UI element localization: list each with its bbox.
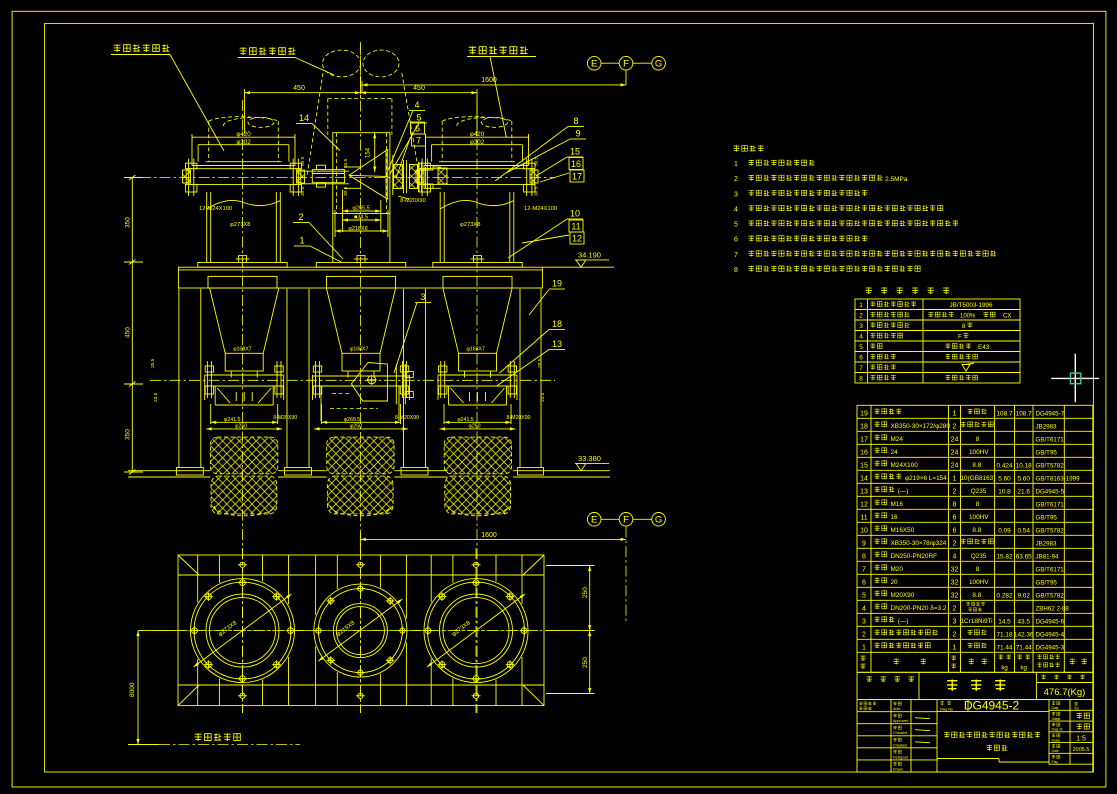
- svg-text:Dwg St: Dwg St: [1052, 728, 1063, 732]
- svg-text:8.8: 8.8: [972, 592, 981, 599]
- svg-text:50.5: 50.5: [300, 156, 306, 166]
- svg-text:8-M20X90: 8-M20X90: [507, 415, 531, 421]
- svg-text:71.18: 71.18: [997, 631, 1013, 638]
- svg-text:GB/T95: GB/T95: [1036, 514, 1058, 521]
- svg-text:6: 6: [953, 527, 957, 534]
- svg-text:108.7: 108.7: [997, 410, 1013, 417]
- svg-text:M16: M16: [890, 501, 903, 508]
- svg-text:Checked: Checked: [893, 743, 907, 747]
- svg-text:DN250-PN20RF: DN250-PN20RF: [890, 553, 937, 560]
- svg-text:3: 3: [953, 618, 957, 625]
- svg-text:Approved: Approved: [893, 719, 908, 723]
- svg-text:GB/T5782: GB/T5782: [1036, 462, 1065, 469]
- svg-text:32: 32: [951, 566, 959, 573]
- svg-text:8-M20X90: 8-M20X90: [400, 198, 425, 204]
- svg-text:G: G: [655, 58, 662, 69]
- svg-text:10.18: 10.18: [1016, 462, 1032, 469]
- svg-text:24: 24: [951, 462, 959, 469]
- svg-text:1: 1: [862, 644, 866, 651]
- svg-text:12: 12: [860, 501, 868, 508]
- svg-text:(—): (—): [898, 618, 909, 625]
- svg-text:8: 8: [962, 323, 966, 330]
- svg-text:φ219×6 L=154: φ219×6 L=154: [905, 475, 947, 482]
- svg-text:DG4945-7: DG4945-7: [1036, 410, 1065, 417]
- svg-text:7: 7: [416, 136, 421, 146]
- svg-text:10: 10: [570, 209, 580, 219]
- svg-text:kg: kg: [1021, 665, 1027, 671]
- svg-text:Auth.: Auth.: [893, 707, 901, 711]
- svg-text:34.190: 34.190: [578, 251, 601, 260]
- svg-text:■34.5: ■34.5: [354, 215, 368, 221]
- svg-text:Dwg: Dwg: [1052, 706, 1059, 710]
- svg-text:16: 16: [860, 449, 868, 456]
- svg-text:JB2983: JB2983: [1036, 423, 1058, 430]
- svg-text:3: 3: [862, 618, 866, 625]
- svg-text:M24: M24: [890, 436, 903, 443]
- svg-text:13: 13: [860, 488, 868, 495]
- svg-text:8.8: 8.8: [972, 527, 981, 534]
- svg-text:5: 5: [859, 344, 863, 351]
- svg-text:φ241.5: φ241.5: [457, 417, 473, 423]
- svg-text:18: 18: [552, 319, 562, 329]
- svg-text:DG4945-3: DG4945-3: [1036, 644, 1065, 651]
- svg-text:63.65: 63.65: [1016, 553, 1032, 560]
- svg-text:8: 8: [953, 501, 957, 508]
- svg-text:30.5: 30.5: [534, 186, 540, 196]
- svg-text:24: 24: [951, 449, 959, 456]
- svg-text:10.8: 10.8: [998, 488, 1011, 495]
- svg-text:32: 32: [951, 579, 959, 586]
- svg-text:21.6: 21.6: [1017, 488, 1030, 495]
- svg-text:φ265.5: φ265.5: [352, 206, 369, 212]
- svg-text:17: 17: [572, 172, 582, 182]
- svg-text:1: 1: [953, 644, 957, 651]
- svg-text:1: 1: [299, 236, 304, 246]
- svg-text:φ250: φ250: [235, 424, 247, 430]
- svg-text:φ218X8: φ218X8: [348, 226, 367, 232]
- svg-text:19: 19: [860, 410, 868, 417]
- svg-text:XB350-30×78/φ324: XB350-30×78/φ324: [890, 540, 946, 547]
- svg-text:8-M20X90: 8-M20X90: [273, 415, 297, 421]
- svg-text:250: 250: [582, 587, 589, 598]
- svg-text:JB81-94: JB81-94: [1036, 553, 1060, 560]
- svg-text:7: 7: [734, 252, 738, 259]
- svg-text:φ168X7: φ168X7: [467, 347, 485, 353]
- svg-text:1:5: 1:5: [1076, 736, 1086, 743]
- svg-text:11: 11: [860, 514, 867, 521]
- svg-text:DN200-PN20 δ=3.2: DN200-PN20 δ=3.2: [890, 605, 946, 612]
- svg-text:Checked: Checked: [893, 731, 907, 735]
- svg-text:DG4945-5: DG4945-5: [1036, 488, 1065, 495]
- svg-text:2005.5: 2005.5: [1073, 747, 1090, 753]
- svg-text:25.5: 25.5: [150, 358, 156, 368]
- svg-text:2: 2: [953, 423, 957, 430]
- svg-text:19: 19: [552, 279, 562, 289]
- svg-text:6: 6: [734, 237, 738, 244]
- svg-text:2: 2: [862, 631, 866, 638]
- svg-text:154: 154: [366, 147, 372, 158]
- svg-text:8: 8: [976, 566, 980, 573]
- svg-text:0.54: 0.54: [1017, 527, 1030, 534]
- svg-text:10: 10: [860, 527, 868, 534]
- svg-text:GB/T95: GB/T95: [1036, 579, 1058, 586]
- svg-text:GB/T5782: GB/T5782: [1036, 592, 1065, 599]
- svg-text:100HV: 100HV: [969, 579, 989, 586]
- svg-text:φ250: φ250: [350, 424, 362, 430]
- svg-text:DG4945-2: DG4945-2: [964, 699, 1020, 713]
- svg-text:GB/T6171: GB/T6171: [1036, 566, 1065, 573]
- svg-text:0.424: 0.424: [997, 462, 1013, 469]
- svg-text:23.5: 23.5: [153, 392, 159, 402]
- svg-text:φ420: φ420: [470, 131, 485, 138]
- svg-text:E43: E43: [978, 344, 990, 351]
- svg-text:8: 8: [862, 553, 866, 560]
- svg-text:M20X90: M20X90: [890, 592, 914, 599]
- svg-text:3: 3: [859, 323, 863, 330]
- svg-text:4: 4: [862, 605, 866, 612]
- svg-text:M20: M20: [890, 566, 903, 573]
- svg-text:GB/T95: GB/T95: [1036, 449, 1058, 456]
- svg-text:8000: 8000: [129, 682, 136, 697]
- svg-text:Q235: Q235: [971, 553, 987, 560]
- svg-text:E: E: [591, 58, 597, 69]
- svg-text:φ302: φ302: [236, 139, 251, 146]
- svg-text:12: 12: [572, 234, 582, 244]
- svg-text:14: 14: [299, 113, 309, 123]
- svg-text:2: 2: [298, 212, 303, 222]
- svg-text:φ273X8: φ273X8: [460, 222, 481, 228]
- svg-text:100HV: 100HV: [969, 514, 989, 521]
- svg-text:JB/T5003-1996: JB/T5003-1996: [949, 302, 993, 309]
- svg-text:450: 450: [125, 327, 132, 338]
- svg-text:0.282: 0.282: [997, 592, 1013, 599]
- svg-text:F: F: [623, 515, 629, 526]
- svg-text:450: 450: [413, 85, 425, 92]
- svg-text:30.5: 30.5: [300, 186, 306, 196]
- svg-text:15: 15: [570, 147, 580, 157]
- svg-text:3: 3: [734, 191, 738, 198]
- svg-text:φ168X7: φ168X7: [350, 347, 368, 353]
- svg-text:CX: CX: [1003, 314, 1011, 320]
- svg-text:100%: 100%: [960, 314, 976, 320]
- svg-text:5.60: 5.60: [1017, 475, 1030, 482]
- svg-text:13: 13: [552, 339, 562, 349]
- svg-text:2.5MPa: 2.5MPa: [885, 176, 908, 183]
- svg-text:(—): (—): [898, 488, 909, 495]
- svg-text:14: 14: [860, 475, 868, 482]
- svg-text:43.5: 43.5: [1017, 618, 1030, 625]
- svg-text:25.5: 25.5: [537, 358, 543, 368]
- svg-text:7: 7: [859, 365, 863, 372]
- svg-text:4: 4: [734, 206, 738, 213]
- svg-text:16: 16: [571, 159, 581, 169]
- svg-text:30.5: 30.5: [343, 186, 349, 196]
- svg-text:1: 1: [859, 302, 863, 309]
- svg-text:5: 5: [734, 222, 738, 229]
- svg-text:M24X100: M24X100: [890, 462, 918, 469]
- svg-text:71.44: 71.44: [997, 644, 1013, 651]
- svg-text:142.36: 142.36: [1014, 631, 1034, 638]
- svg-text:2: 2: [953, 540, 957, 547]
- svg-text:Pag: Pag: [1052, 760, 1058, 764]
- svg-text:XB350-30×172/φ280: XB350-30×172/φ280: [890, 423, 950, 430]
- svg-text:450: 450: [293, 85, 305, 92]
- svg-text:8-M20X90: 8-M20X90: [395, 415, 419, 421]
- svg-text:476.7(Kg): 476.7(Kg): [1044, 687, 1086, 698]
- svg-text:1: 1: [953, 410, 957, 417]
- svg-text:0.09: 0.09: [998, 527, 1011, 534]
- svg-text:2: 2: [859, 313, 863, 320]
- svg-text:1: 1: [953, 475, 957, 482]
- svg-text:Date: Date: [1052, 749, 1059, 753]
- svg-text:φ241.5: φ241.5: [224, 417, 240, 423]
- svg-text:GB/T8163-1999: GB/T8163-1999: [1036, 475, 1081, 482]
- svg-text:12-M24X100: 12-M24X100: [524, 206, 557, 212]
- svg-text:3: 3: [420, 292, 425, 302]
- svg-text:5: 5: [416, 113, 421, 123]
- svg-text:Q235: Q235: [971, 488, 987, 495]
- svg-text:23.5: 23.5: [540, 392, 546, 402]
- svg-text:DG4945-6: DG4945-6: [1036, 618, 1065, 625]
- svg-text:6: 6: [862, 579, 866, 586]
- svg-text:108.7: 108.7: [1016, 410, 1032, 417]
- svg-text:20: 20: [890, 579, 898, 586]
- svg-text:100HV: 100HV: [969, 449, 989, 456]
- svg-text:1Cr18Ni9Ti: 1Cr18Ni9Ti: [961, 618, 993, 625]
- svg-text:φ273X8: φ273X8: [230, 222, 251, 228]
- svg-text:6: 6: [859, 355, 863, 362]
- svg-text:4: 4: [414, 100, 419, 110]
- svg-text:Designed: Designed: [893, 755, 908, 759]
- svg-text:8: 8: [734, 267, 738, 274]
- svg-text:11: 11: [571, 222, 580, 232]
- svg-text:24: 24: [951, 436, 959, 443]
- svg-text:8: 8: [976, 436, 980, 443]
- svg-text:φ250: φ250: [468, 424, 480, 430]
- svg-text:φ302: φ302: [470, 139, 485, 146]
- svg-text:14.5: 14.5: [998, 618, 1011, 625]
- svg-text:16: 16: [890, 514, 898, 521]
- svg-text:2: 2: [953, 488, 957, 495]
- svg-text:50.5: 50.5: [343, 158, 349, 168]
- svg-text:9.02: 9.02: [1017, 592, 1030, 599]
- svg-text:JB2983: JB2983: [1036, 540, 1058, 547]
- svg-text:DG4945-4: DG4945-4: [1036, 631, 1065, 638]
- svg-text:6: 6: [953, 514, 957, 521]
- svg-text:7: 7: [862, 566, 866, 573]
- svg-text:4: 4: [953, 553, 957, 560]
- svg-text:2: 2: [953, 631, 957, 638]
- svg-text:9: 9: [862, 540, 866, 547]
- svg-text:Dwg No: Dwg No: [940, 708, 953, 712]
- svg-text:1600: 1600: [481, 532, 497, 539]
- svg-text:ZBH62 2-88: ZBH62 2-88: [1036, 605, 1070, 612]
- svg-text:17: 17: [860, 436, 868, 443]
- svg-text:Stage: Stage: [1052, 717, 1061, 721]
- svg-text:φ420: φ420: [236, 131, 251, 138]
- svg-text:Tot: Tot: [1074, 707, 1079, 711]
- svg-text:GB/T6171: GB/T6171: [1036, 436, 1065, 443]
- svg-text:8: 8: [976, 501, 980, 508]
- svg-text:E: E: [591, 515, 597, 526]
- svg-text:F: F: [958, 334, 962, 341]
- svg-text:M16X50: M16X50: [890, 527, 914, 534]
- svg-text:1600: 1600: [481, 77, 497, 84]
- svg-text:9: 9: [575, 129, 580, 139]
- svg-text:F: F: [623, 58, 629, 69]
- svg-text:10(GB8163): 10(GB8163): [961, 475, 996, 482]
- svg-text:8.8: 8.8: [972, 462, 981, 469]
- svg-text:5.60: 5.60: [998, 475, 1011, 482]
- svg-text:350: 350: [125, 217, 132, 228]
- svg-text:8: 8: [573, 116, 578, 126]
- svg-text:250: 250: [582, 657, 589, 668]
- svg-text:5: 5: [862, 592, 866, 599]
- svg-text:18: 18: [860, 423, 868, 430]
- svg-text:φ168X7: φ168X7: [233, 347, 251, 353]
- svg-text:2: 2: [953, 605, 957, 612]
- svg-text:Scale: Scale: [1052, 738, 1061, 742]
- svg-text:24: 24: [890, 449, 898, 456]
- svg-text:Drawn: Drawn: [893, 767, 903, 771]
- svg-text:GB/T6171: GB/T6171: [1036, 501, 1065, 508]
- svg-text:GB/T5782: GB/T5782: [1036, 527, 1065, 534]
- svg-text:6: 6: [415, 124, 420, 134]
- svg-text:1: 1: [734, 161, 738, 168]
- svg-text:33.380: 33.380: [578, 454, 601, 463]
- svg-text:G: G: [655, 515, 662, 526]
- svg-text:4: 4: [859, 334, 863, 341]
- svg-text:71.44: 71.44: [1016, 644, 1032, 651]
- svg-text:8: 8: [859, 376, 863, 383]
- svg-text:12-M24X100: 12-M24X100: [199, 206, 232, 212]
- svg-text:15: 15: [860, 462, 868, 469]
- svg-text:φ268.5: φ268.5: [344, 417, 360, 423]
- svg-text:32: 32: [951, 592, 959, 599]
- svg-text:kg: kg: [1001, 665, 1007, 671]
- svg-text:15.82: 15.82: [997, 553, 1013, 560]
- svg-text:350: 350: [125, 429, 132, 440]
- svg-text:2: 2: [734, 176, 738, 183]
